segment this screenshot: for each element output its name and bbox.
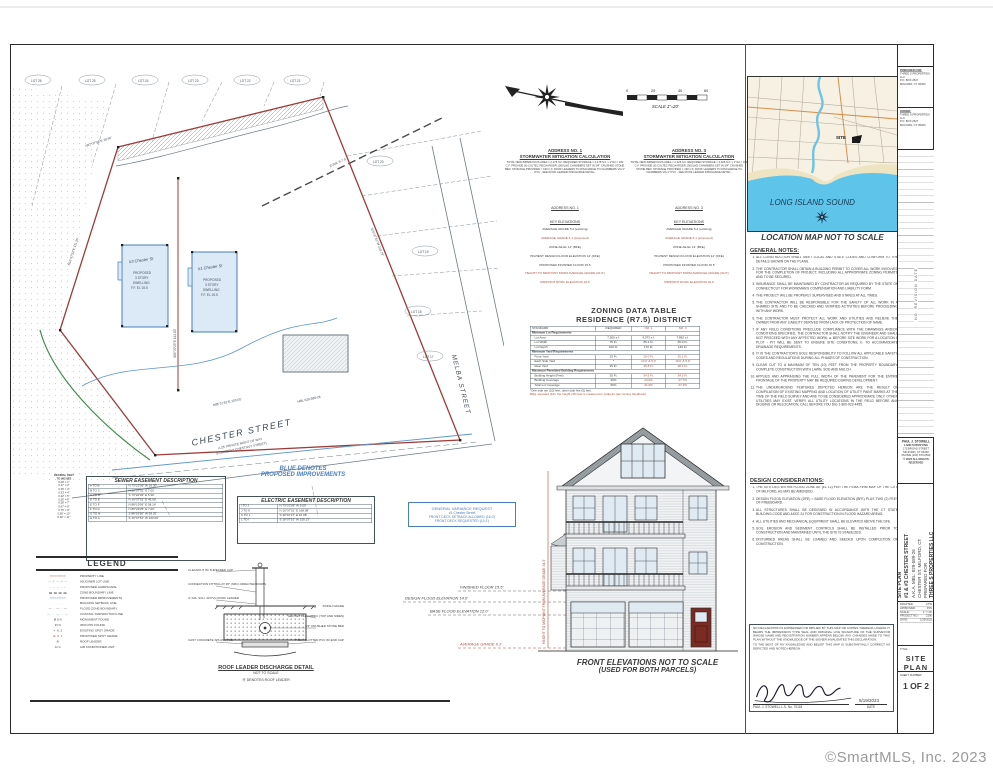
legend-symbol: ⊕ 6.1 bbox=[36, 635, 80, 639]
svg-text:HEIGHT TO MIDPOINT FROM AVERAG: HEIGHT TO MIDPOINT FROM AVERAGE GRADE 34… bbox=[542, 559, 546, 644]
variance-line: FRONT DECK REQUESTED (10.1') bbox=[411, 519, 513, 523]
project-line: CHESTER ST. MILFORD, CT bbox=[917, 487, 922, 598]
svg-text:4" DIA. SCH. 40 PVC ROOF LEADE: 4" DIA. SCH. 40 PVC ROOF LEADER bbox=[188, 596, 240, 600]
svg-text:LOT 18: LOT 18 bbox=[411, 310, 422, 314]
scale-bar: 0 20 40 60 SCALE 1"=20' bbox=[626, 86, 718, 114]
legend-item: — · — · — FLOOD ZONE BOUNDARY bbox=[36, 608, 178, 612]
legend-label: COASTAL JURISDICTION LINE bbox=[80, 613, 123, 617]
legend-symbol: — ⁄⁄ — ⁄⁄ — bbox=[36, 580, 80, 584]
svg-text:DWELLING: DWELLING bbox=[203, 288, 220, 292]
stormwater-address-3: ADDRESS NO. 3 bbox=[630, 148, 748, 153]
svg-text:F.F. EL 15.5: F.F. EL 15.5 bbox=[131, 286, 148, 290]
svg-text:PROPOSED: PROPOSED bbox=[203, 278, 222, 282]
project-line: SITE PLAN bbox=[898, 487, 903, 598]
bottom-rule bbox=[30, 700, 450, 702]
general-note-item: THE CONTRACTOR MUST PROTECT ALL WORK AND… bbox=[756, 317, 898, 326]
key-elev-header-1: ADDRESS NO. 1 bbox=[504, 206, 626, 210]
key-elevation-line: AVERAGE GRADE 6.1 (proposed) bbox=[630, 237, 748, 241]
sheet-title-box: TITLE: SITE PLAN bbox=[898, 646, 934, 672]
zoning-subtitle: RESIDENCE (R7.5) DISTRICT bbox=[520, 315, 748, 324]
legend-label: PROPOSED HARDSCAPE bbox=[80, 586, 117, 590]
legend-symbol: Ⓡ bbox=[36, 640, 80, 644]
project-line: A.K.A. MBL: 029-589-26 bbox=[911, 487, 916, 598]
revision-strip: NO. REVISION DATE bbox=[898, 150, 934, 438]
legend-symbol: MON bbox=[36, 619, 80, 623]
svg-text:LOT 20: LOT 20 bbox=[373, 160, 384, 164]
scan-edge-artifact bbox=[0, 6, 993, 8]
legend-label: FLOOD ZONE BOUNDARY bbox=[80, 608, 117, 612]
sheet-number: 1 OF 2 bbox=[900, 681, 932, 691]
zoning-title: ZONING DATA TABLE bbox=[520, 306, 748, 315]
location-map-caption: LOCATION MAP NOT TO SCALE bbox=[747, 233, 898, 242]
legend-item: ⊕ 6.1 PROPOSED SPOT GRADE bbox=[36, 635, 178, 639]
svg-text:3 STORY: 3 STORY bbox=[135, 276, 149, 280]
legend-label: MONUMENT FOUND bbox=[80, 619, 109, 623]
key-elev-sub-1: KEY ELEVATIONS bbox=[504, 220, 626, 224]
legend-item: — ·· — ·· — COASTAL JURISDICTION LINE bbox=[36, 613, 178, 617]
svg-text:CONNECTION FITTING AT 45° (MIN: CONNECTION FITTING AT 45° (MIN.) DIRECTE… bbox=[188, 582, 266, 586]
key-elevations-1: AVERAGE GRADE 5.4 (existing)AVERAGE GRAD… bbox=[504, 228, 626, 285]
owner-line: MILFORD, CT 06460 bbox=[900, 124, 932, 128]
svg-text:PROPOSED: PROPOSED bbox=[133, 271, 152, 275]
svg-text:LOT 26: LOT 26 bbox=[31, 79, 42, 83]
svg-text:20: 20 bbox=[651, 89, 655, 93]
key-elevation-line: ZONE AE EL 12' (BFE) bbox=[630, 246, 748, 250]
svg-text:DESIGN FLOOD ELEVATION 14.0': DESIGN FLOOD ELEVATION 14.0' bbox=[405, 596, 468, 601]
stormwater-address-1: ADDRESS NO. 1 bbox=[504, 148, 626, 153]
general-notes-title: GENERAL NOTES: bbox=[750, 248, 898, 254]
sheet-title-label: TITLE: bbox=[900, 648, 908, 651]
blue-note-line2: PROPOSED IMPROVEMENTS bbox=[243, 472, 363, 478]
design-note-item: ALL UTILITIES AND MECHANICAL EQUIPMENT S… bbox=[756, 520, 898, 524]
revision-header: NO. REVISION DATE bbox=[914, 266, 918, 322]
signature bbox=[753, 677, 853, 703]
legend-symbol: — · — · — bbox=[36, 608, 80, 612]
design-note-item: DISTURBED AREAS SHALL BE LOAMED AND SEED… bbox=[756, 538, 898, 547]
easement-row: L TO I S 16°37'51" W 150.13' bbox=[239, 518, 372, 523]
prepared-for-line: THREE S PROPERTIES LLC bbox=[900, 73, 932, 80]
legend-symbol: PIN bbox=[36, 624, 80, 628]
detail-subtitle: NOT TO SCALE bbox=[186, 671, 346, 675]
lot-labels-top bbox=[25, 75, 310, 85]
declaration-paragraph-1: NO DECLARATION IS EXPRESSED OR IMPLIED B… bbox=[753, 627, 890, 642]
date-label: DATE bbox=[855, 704, 887, 709]
legend-label: BUILDING SETBACK LINE bbox=[80, 602, 117, 606]
sheet-number-label: SHEET NUMBER: bbox=[900, 674, 922, 677]
legend-item: ▬ ▬ ▬ ▬ ZONE BOUNDARY LINE bbox=[36, 591, 178, 595]
svg-text:LOT 17: LOT 17 bbox=[423, 355, 434, 359]
svg-text:LOT 24: LOT 24 bbox=[138, 79, 149, 83]
key-elevation-line: HEIGHT TO MIDPOINT FROM AVERAGE GRADE (3… bbox=[630, 272, 748, 276]
title-block: PREPARED FOR: THREE S PROPERTIES LLC P.O… bbox=[897, 44, 934, 734]
key-elevation-line: PROPOSED FINISHED FLOOR 15.5 bbox=[504, 264, 626, 268]
legend-item: × 6.2 EXISTING SPOT GRADE bbox=[36, 629, 178, 633]
variance-note: GENERAL VARIANCE REQUEST #1 Chester Stre… bbox=[408, 502, 516, 527]
legend-item: – – – – – PROPOSED HARDSCAPE bbox=[36, 586, 178, 590]
svg-text:MELBA STREET: MELBA STREET bbox=[450, 354, 472, 415]
project-line: THREE S PROPERTIES LLC bbox=[929, 487, 934, 598]
legend-symbol: ▬ ▬ ▬ ▬ bbox=[36, 591, 80, 595]
legend-item: · · · · · · BUILDING SETBACK LINE bbox=[36, 602, 178, 606]
design-note-item: ALL STRUCTURES SHALL BE DESIGNED IN ACCO… bbox=[756, 509, 898, 518]
general-note-item: ALL CONSTRUCTION SHALL MEET LOCAL AND ST… bbox=[756, 256, 898, 265]
compass-rose-icon bbox=[815, 210, 829, 224]
svg-text:LOT 23: LOT 23 bbox=[188, 79, 199, 83]
legend-label: EXISTING SPOT GRADE bbox=[80, 629, 114, 633]
general-note-item: THE PROJECT WILL BE PROPERLY SUPERVISED … bbox=[756, 294, 898, 298]
legend-symbol: ━━━━━━━ bbox=[36, 575, 80, 579]
legend-item: PIN IRON PIN FOUND bbox=[36, 624, 178, 628]
design-note-item: SOIL EROSION AND SEDIMENT CONTROLS SHALL… bbox=[756, 527, 898, 536]
general-note-item: CLEAR CUT TO A MAXIMUM OF TEN (10) FEET … bbox=[756, 364, 898, 373]
zoning-row: Total Lot Coverage 60% 41.6% 47.2% bbox=[530, 383, 700, 388]
svg-text:CAST CONCRETE SPLASH PAD: CAST CONCRETE SPLASH PAD bbox=[188, 638, 234, 642]
general-note-item: THE CONTRACTOR SHALL OBTAIN A BUILDING P… bbox=[756, 267, 898, 280]
owner-line: THREE S PROPERTIES LLC bbox=[900, 114, 932, 121]
key-elevation-line: ZONE AE EL 12' (BFE) bbox=[504, 246, 626, 250]
stormwater-body-1: TOTAL NEW IMPERVIOUS AREA = 2,178 S.F. R… bbox=[504, 161, 626, 175]
key-elevation-line: MIDPOINT ROOF ELEVATION 40.6 bbox=[504, 281, 626, 285]
prepared-for-box: PREPARED FOR: THREE S PROPERTIES LLC P.O… bbox=[898, 66, 934, 108]
detail-footnote: Ⓡ DENOTES ROOF LEADER bbox=[186, 678, 346, 683]
sheet-title: SITE PLAN bbox=[900, 654, 932, 672]
key-elevation-line: HIGHEST DESIGN FLOOD ELEVATION 14' (DFE) bbox=[504, 255, 626, 259]
svg-text:LOT 21: LOT 21 bbox=[290, 79, 301, 83]
legend-item: A/C AIR CONDITIONER UNIT bbox=[36, 646, 178, 650]
zoning-note-2: Bldg. elevated (FZ): the height (35) fee… bbox=[530, 393, 758, 397]
key-elevation-line: MIDPOINT ROOF ELEVATION 40.6 bbox=[630, 281, 748, 285]
north-arrow-icon bbox=[503, 80, 628, 125]
svg-text:LOT 22: LOT 22 bbox=[240, 79, 251, 83]
proposed-building-3: #3 Chester St PROPOSED 3 STORY DWELLING … bbox=[118, 244, 168, 327]
sewer-easement-table: SEWER EASEMENT DESCRIPTION A TO B N 73°2… bbox=[86, 476, 226, 561]
general-note-item: THE UNDERGROUND FEATURES DEPICTED HEREON… bbox=[756, 386, 898, 407]
stormwater-body-3: TOTAL NEW IMPERVIOUS AREA = 2,026 S.F. R… bbox=[630, 161, 748, 175]
svg-text:4" DIA. SLOTTED PVC W/ END CAP: 4" DIA. SLOTTED PVC W/ END CAP bbox=[294, 638, 344, 642]
info-key: DATE: bbox=[900, 619, 908, 623]
legend-symbol: · · · · · · bbox=[36, 602, 80, 606]
svg-text:LOT 19: LOT 19 bbox=[418, 250, 429, 254]
roof-leader-detail: CLEANOUT W/ THREADED CAP CONNECTION FITT… bbox=[186, 562, 346, 683]
signer-name: PAUL J. STOWELL L.S. No. 70118 bbox=[753, 704, 849, 709]
legend-label: IRON PIN FOUND bbox=[80, 624, 105, 628]
info-value: 1/25/2023 bbox=[920, 619, 932, 623]
legend-symbol: ━━━━━━━ bbox=[36, 597, 80, 601]
stormwater-calc-1: ADDRESS NO. 1 STORMWATER MITIGATION CALC… bbox=[504, 148, 626, 290]
svg-text:40: 40 bbox=[678, 89, 682, 93]
firm-copyright: © 2023 ALL RIGHTS RESERVED bbox=[900, 458, 932, 465]
zone-boundary-line: ZONE R-7.5 bbox=[262, 118, 442, 206]
svg-text:FINISHED FLOOR 15.5': FINISHED FLOOR 15.5' bbox=[460, 585, 503, 590]
key-elevation-line: PROPOSED FINISHED FLOOR 15.5 bbox=[630, 264, 748, 268]
house bbox=[551, 428, 729, 651]
entry-door bbox=[691, 608, 711, 647]
key-elev-sub-3: KEY ELEVATIONS bbox=[630, 220, 748, 224]
lot-labels-top-text: LOT 26 LOT 25 LOT 24 LOT 23 LOT 22 LOT 2… bbox=[31, 79, 301, 83]
datum-labels: FINISHED FLOOR 15.5' DESIGN FLOOD ELEVAT… bbox=[405, 585, 503, 647]
svg-text:GEOTEXTILE FABRIC (TOP AND SID: GEOTEXTILE FABRIC (TOP AND SIDES) bbox=[288, 614, 344, 618]
project-title-box: SITE PLAN #1 & #3 CHESTER STREET A.K.A. … bbox=[898, 484, 934, 602]
legend-item: — ⁄⁄ — ⁄⁄ — ADJOINER LOT LINE bbox=[36, 580, 178, 584]
svg-text:0: 0 bbox=[626, 89, 628, 93]
attic-window bbox=[621, 444, 665, 478]
height-dimension: HEIGHT TO MIDPOINT FROM AVERAGE GRADE 34… bbox=[542, 471, 548, 648]
signature-date: 5/19/2023 bbox=[859, 698, 879, 703]
project-line: #1 & #3 CHESTER STREET bbox=[904, 487, 910, 598]
blue-improvements-note: BLUE DENOTES PROPOSED IMPROVEMENTS bbox=[243, 466, 363, 478]
key-elevation-line: AVERAGE GRADE 5.4 (existing) bbox=[630, 228, 748, 232]
svg-text:SCALE 1"=20': SCALE 1"=20' bbox=[652, 104, 679, 109]
general-note-item: IF ANY FIELD CONDITIONS PRECLUDE COMPLIA… bbox=[756, 328, 898, 349]
svg-text:AVERAGE GRADE 6.1': AVERAGE GRADE 6.1' bbox=[459, 642, 502, 647]
sheet-number-box: SHEET NUMBER: 1 OF 2 bbox=[898, 672, 934, 700]
general-note-item: INSURANCE SHALL BE MAINTAINED BY CONTRAC… bbox=[756, 283, 898, 292]
svg-text:3 STORY: 3 STORY bbox=[205, 283, 219, 287]
surveyor-declaration: NO DECLARATION IS EXPRESSED OR IMPLIED B… bbox=[749, 624, 894, 712]
svg-text:MBL 029-589-26: MBL 029-589-26 bbox=[297, 395, 321, 404]
info-table: DRAFTED: CTW APPROVED: PJS SCALE: 1" = 2… bbox=[898, 602, 934, 646]
location-map: SITE LONG ISLAND SOUND bbox=[747, 76, 898, 232]
svg-text:3/4" CRUSHED STONE BED: 3/4" CRUSHED STONE BED bbox=[305, 624, 345, 628]
existing-building: MBL 029-589-26 bbox=[283, 335, 348, 404]
easement-row: H TO A S 16°37'51" W 100.00' bbox=[88, 517, 223, 522]
prepared-for-line: MILFORD, CT 06460 bbox=[900, 83, 932, 87]
key-elevation-line: AVERAGE GRADE 6.1 (proposed) bbox=[504, 237, 626, 241]
surveyor-firm-box: PAUL J. STOWELL LAND SURVEYING 175 BROAD… bbox=[898, 438, 934, 484]
design-considerations: DESIGN CONSIDERATIONS: THE SITE LIES WIT… bbox=[750, 478, 898, 603]
stormwater-calc-3: ADDRESS NO. 3 STORMWATER MITIGATION CALC… bbox=[630, 148, 748, 290]
project-line: PREPARED FOR bbox=[923, 487, 928, 598]
elevation-caption-line1: FRONT ELEVATIONS NOT TO SCALE bbox=[545, 658, 750, 667]
key-elevation-line: AVERAGE GRADE 5.4 (existing) bbox=[504, 228, 626, 232]
svg-text:FINISH GRADE: FINISH GRADE bbox=[323, 604, 344, 608]
key-elevation-line: HIGHEST DESIGN FLOOD ELEVATION 14' (DFE) bbox=[630, 255, 748, 259]
svg-text:F.F. EL 15.5: F.F. EL 15.5 bbox=[201, 293, 218, 297]
site-marker-label: SITE bbox=[836, 135, 846, 140]
wetland-hatch-strip bbox=[116, 97, 348, 166]
owner-box: OWNER: THREE S PROPERTIES LLC P.O. BOX 2… bbox=[898, 108, 934, 150]
svg-text:N86°37'51"E 100.00': N86°37'51"E 100.00' bbox=[212, 397, 242, 407]
watermark: ©SmartMLS, Inc. 2023 bbox=[825, 749, 987, 766]
legend-item: ━━━━━━━ PROPOSED IMPROVEMENTS bbox=[36, 597, 178, 601]
legend-item: ━━━━━━━ PROPERTY LINE bbox=[36, 575, 178, 579]
design-note-item: DESIGN FLOOD ELEVATION (DFE) = BASE FLOO… bbox=[756, 497, 898, 506]
legend-symbol: A/C bbox=[36, 646, 80, 650]
key-elevation-line: HEIGHT TO MIDPOINT FROM AVERAGE GRADE (3… bbox=[504, 272, 626, 276]
svg-text:BASE FLOOD ELEVATION 12.0': BASE FLOOD ELEVATION 12.0' bbox=[430, 609, 489, 614]
elevation-caption-line2: (USED FOR BOTH PARCELS) bbox=[545, 667, 750, 674]
general-notes-list: ALL CONSTRUCTION SHALL MEET LOCAL AND ST… bbox=[750, 256, 898, 408]
elevation-caption: FRONT ELEVATIONS NOT TO SCALE (USED FOR … bbox=[545, 658, 750, 674]
lot-labels-right: LOT 20 LOT 19 LOT 18 LOT 17 bbox=[367, 156, 443, 361]
legend-symbol: × 6.2 bbox=[36, 629, 80, 633]
stormwater-title-3: STORMWATER MITIGATION CALCULATION bbox=[630, 154, 748, 159]
svg-text:S89°29'25"E 142.00': S89°29'25"E 142.00' bbox=[173, 328, 177, 358]
legend-symbol: – – – – – bbox=[36, 586, 80, 590]
scanned-site-plan-sheet: ZONE R-7.5 #3 Che bbox=[0, 0, 993, 768]
zoning-data-table: STANDARD REQUIRED NO. 1 NO. 3 Minimum Lo… bbox=[530, 326, 700, 388]
key-elevations-3: AVERAGE GRADE 5.4 (existing)AVERAGE GRAD… bbox=[630, 228, 748, 285]
legend-label: PROPERTY LINE bbox=[80, 575, 104, 579]
design-note-item: THE SITE LIES WITHIN FLOOD ZONE AE (EL 1… bbox=[756, 486, 898, 495]
decimal-item: 0.92' = 11" bbox=[44, 516, 84, 520]
stormwater-title-1: STORMWATER MITIGATION CALCULATION bbox=[504, 154, 626, 159]
general-note-item: THE CONTRACTOR WILL BE RESPONSIBLE FOR T… bbox=[756, 301, 898, 314]
svg-text:CLEANOUT W/ THREADED CAP: CLEANOUT W/ THREADED CAP bbox=[188, 568, 233, 572]
design-considerations-list: THE SITE LIES WITHIN FLOOD ZONE AE (EL 1… bbox=[750, 486, 898, 547]
legend-label: PROPOSED IMPROVEMENTS bbox=[80, 597, 122, 601]
svg-text:DWELLING: DWELLING bbox=[133, 281, 150, 285]
legend-label: ZONE BOUNDARY LINE bbox=[80, 591, 114, 595]
legend-label: AIR CONDITIONER UNIT bbox=[80, 646, 115, 650]
proposed-building-1: #1 Chester St PROPOSED 3 STORY DWELLING … bbox=[188, 251, 237, 332]
design-considerations-title: DESIGN CONSIDERATIONS: bbox=[750, 478, 898, 484]
general-note-item: IT IS THE CONTRACTOR'S SOLE RESPONSIBILI… bbox=[756, 352, 898, 361]
legend-title: LEGEND bbox=[36, 556, 178, 571]
legend-item: Ⓡ ROOF LEADER bbox=[36, 640, 178, 644]
electric-easement-table: ELECTRIC EASEMENT DESCRIPTION I TO J N 7… bbox=[237, 496, 375, 544]
front-elevation-drawing: FINISHED FLOOR 15.5' DESIGN FLOOD ELEVAT… bbox=[398, 416, 743, 666]
legend-label: ADJOINER LOT LINE bbox=[80, 580, 109, 584]
side-bay bbox=[551, 546, 566, 590]
svg-text:LOT 25: LOT 25 bbox=[85, 79, 96, 83]
key-elev-header-3: ADDRESS NO. 3 bbox=[630, 206, 748, 210]
water-label: LONG ISLAND SOUND bbox=[770, 198, 855, 207]
legend-item: MON MONUMENT FOUND bbox=[36, 619, 178, 623]
svg-text:60: 60 bbox=[704, 89, 708, 93]
legend-label: PROPOSED SPOT GRADE bbox=[80, 635, 117, 639]
declaration-paragraph-2: TO THE BEST OF MY KNOWLEDGE AND BELIEF T… bbox=[753, 644, 890, 652]
info-row: DATE: 1/25/2023 bbox=[900, 619, 932, 623]
legend-label: ROOF LEADER bbox=[80, 640, 102, 644]
legend-symbol: — ·· — ·· — bbox=[36, 613, 80, 617]
general-note-item: APPLIED AND APPRAISING THE FULL WIDTH OF… bbox=[756, 375, 898, 384]
